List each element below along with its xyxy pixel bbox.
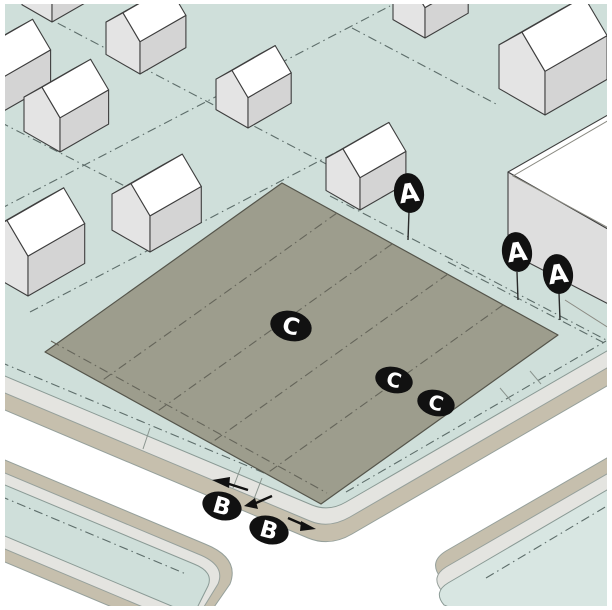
marker-a-2-label: A [505,237,529,270]
diagram-canvas: A A A C C C B B [0,0,612,610]
site-plan-figure: A A A C C C B B [0,0,612,610]
marker-a-1-label: A [397,178,421,211]
marker-a-3-label: A [546,259,570,292]
